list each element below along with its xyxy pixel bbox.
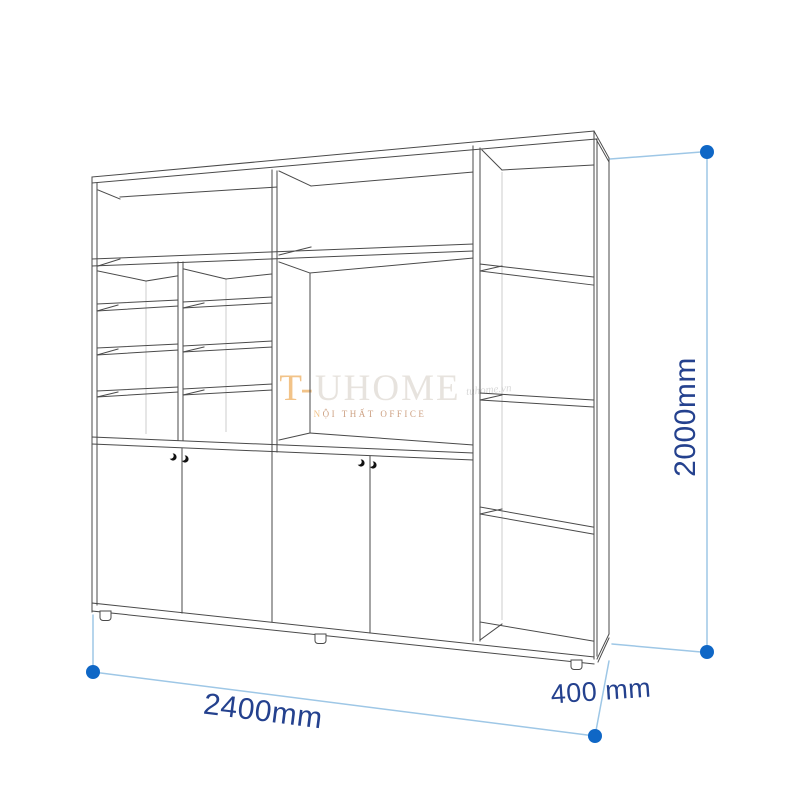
foot xyxy=(315,634,326,644)
dimension-dot xyxy=(700,145,714,159)
height-extension-line-bottom xyxy=(612,644,701,652)
tv-niche xyxy=(279,258,473,445)
handle-icon xyxy=(356,459,365,467)
handle-icon xyxy=(180,455,189,463)
doors-and-base xyxy=(92,448,594,664)
foot xyxy=(100,611,111,621)
back-panel-edges xyxy=(146,172,502,620)
handle-icon xyxy=(368,461,377,469)
shelf-grid xyxy=(97,262,272,440)
dimension-dot xyxy=(86,665,100,679)
dimension-dots xyxy=(86,145,714,743)
cabinet-dimension-diagram: T-UHOME NỘI THẤT OFFICE tuhome.vn xyxy=(0,0,800,800)
dimension-lines xyxy=(93,152,707,736)
handle-icon xyxy=(168,453,177,461)
dimension-dot xyxy=(700,645,714,659)
height-extension-line-top xyxy=(610,152,701,159)
top-band xyxy=(92,170,473,452)
dimension-dot xyxy=(588,729,602,743)
height-dimension-label: 2000mm xyxy=(669,317,703,517)
foot xyxy=(571,660,582,670)
right-column-shelves xyxy=(473,146,593,641)
